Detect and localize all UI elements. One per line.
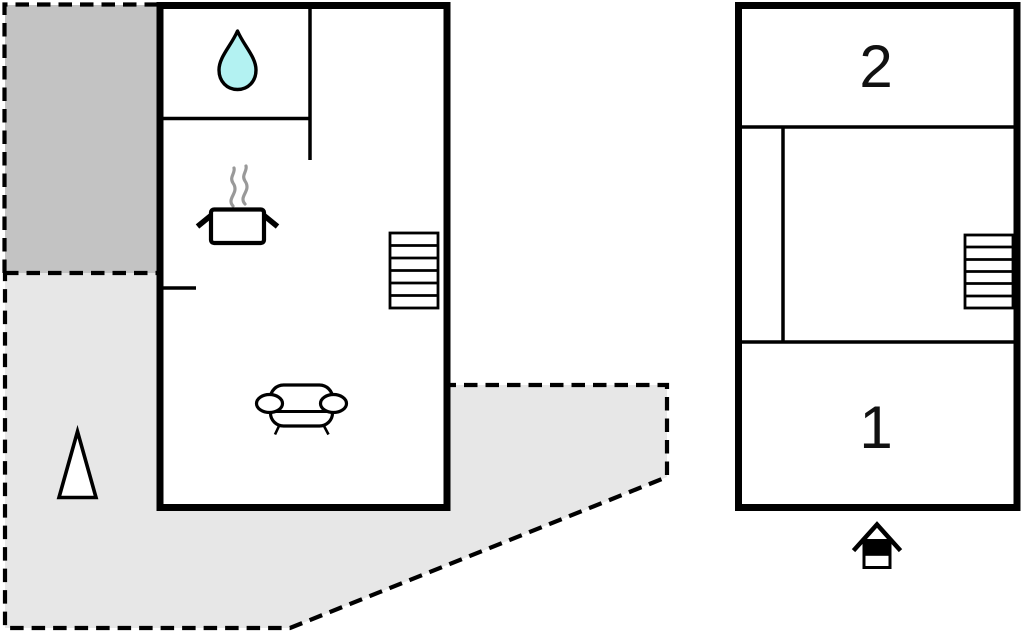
sofa-armrest-left bbox=[257, 395, 283, 413]
upper-staircase-icon bbox=[965, 235, 1013, 308]
ground-floor-plan bbox=[5, 4, 668, 628]
room-1-label: 1 bbox=[859, 394, 892, 461]
house-entrance-icon bbox=[855, 525, 899, 568]
terrace-upper-area bbox=[5, 5, 161, 274]
room-2-label: 2 bbox=[859, 33, 892, 100]
terrace-upper-fill bbox=[5, 5, 160, 273]
pot-body bbox=[211, 210, 264, 244]
floorplan-canvas: 2 1 bbox=[0, 0, 1024, 634]
staircase-icon bbox=[390, 233, 438, 308]
sofa-armrest-right bbox=[321, 395, 347, 413]
upper-floor-plan: 2 1 bbox=[735, 6, 1017, 568]
